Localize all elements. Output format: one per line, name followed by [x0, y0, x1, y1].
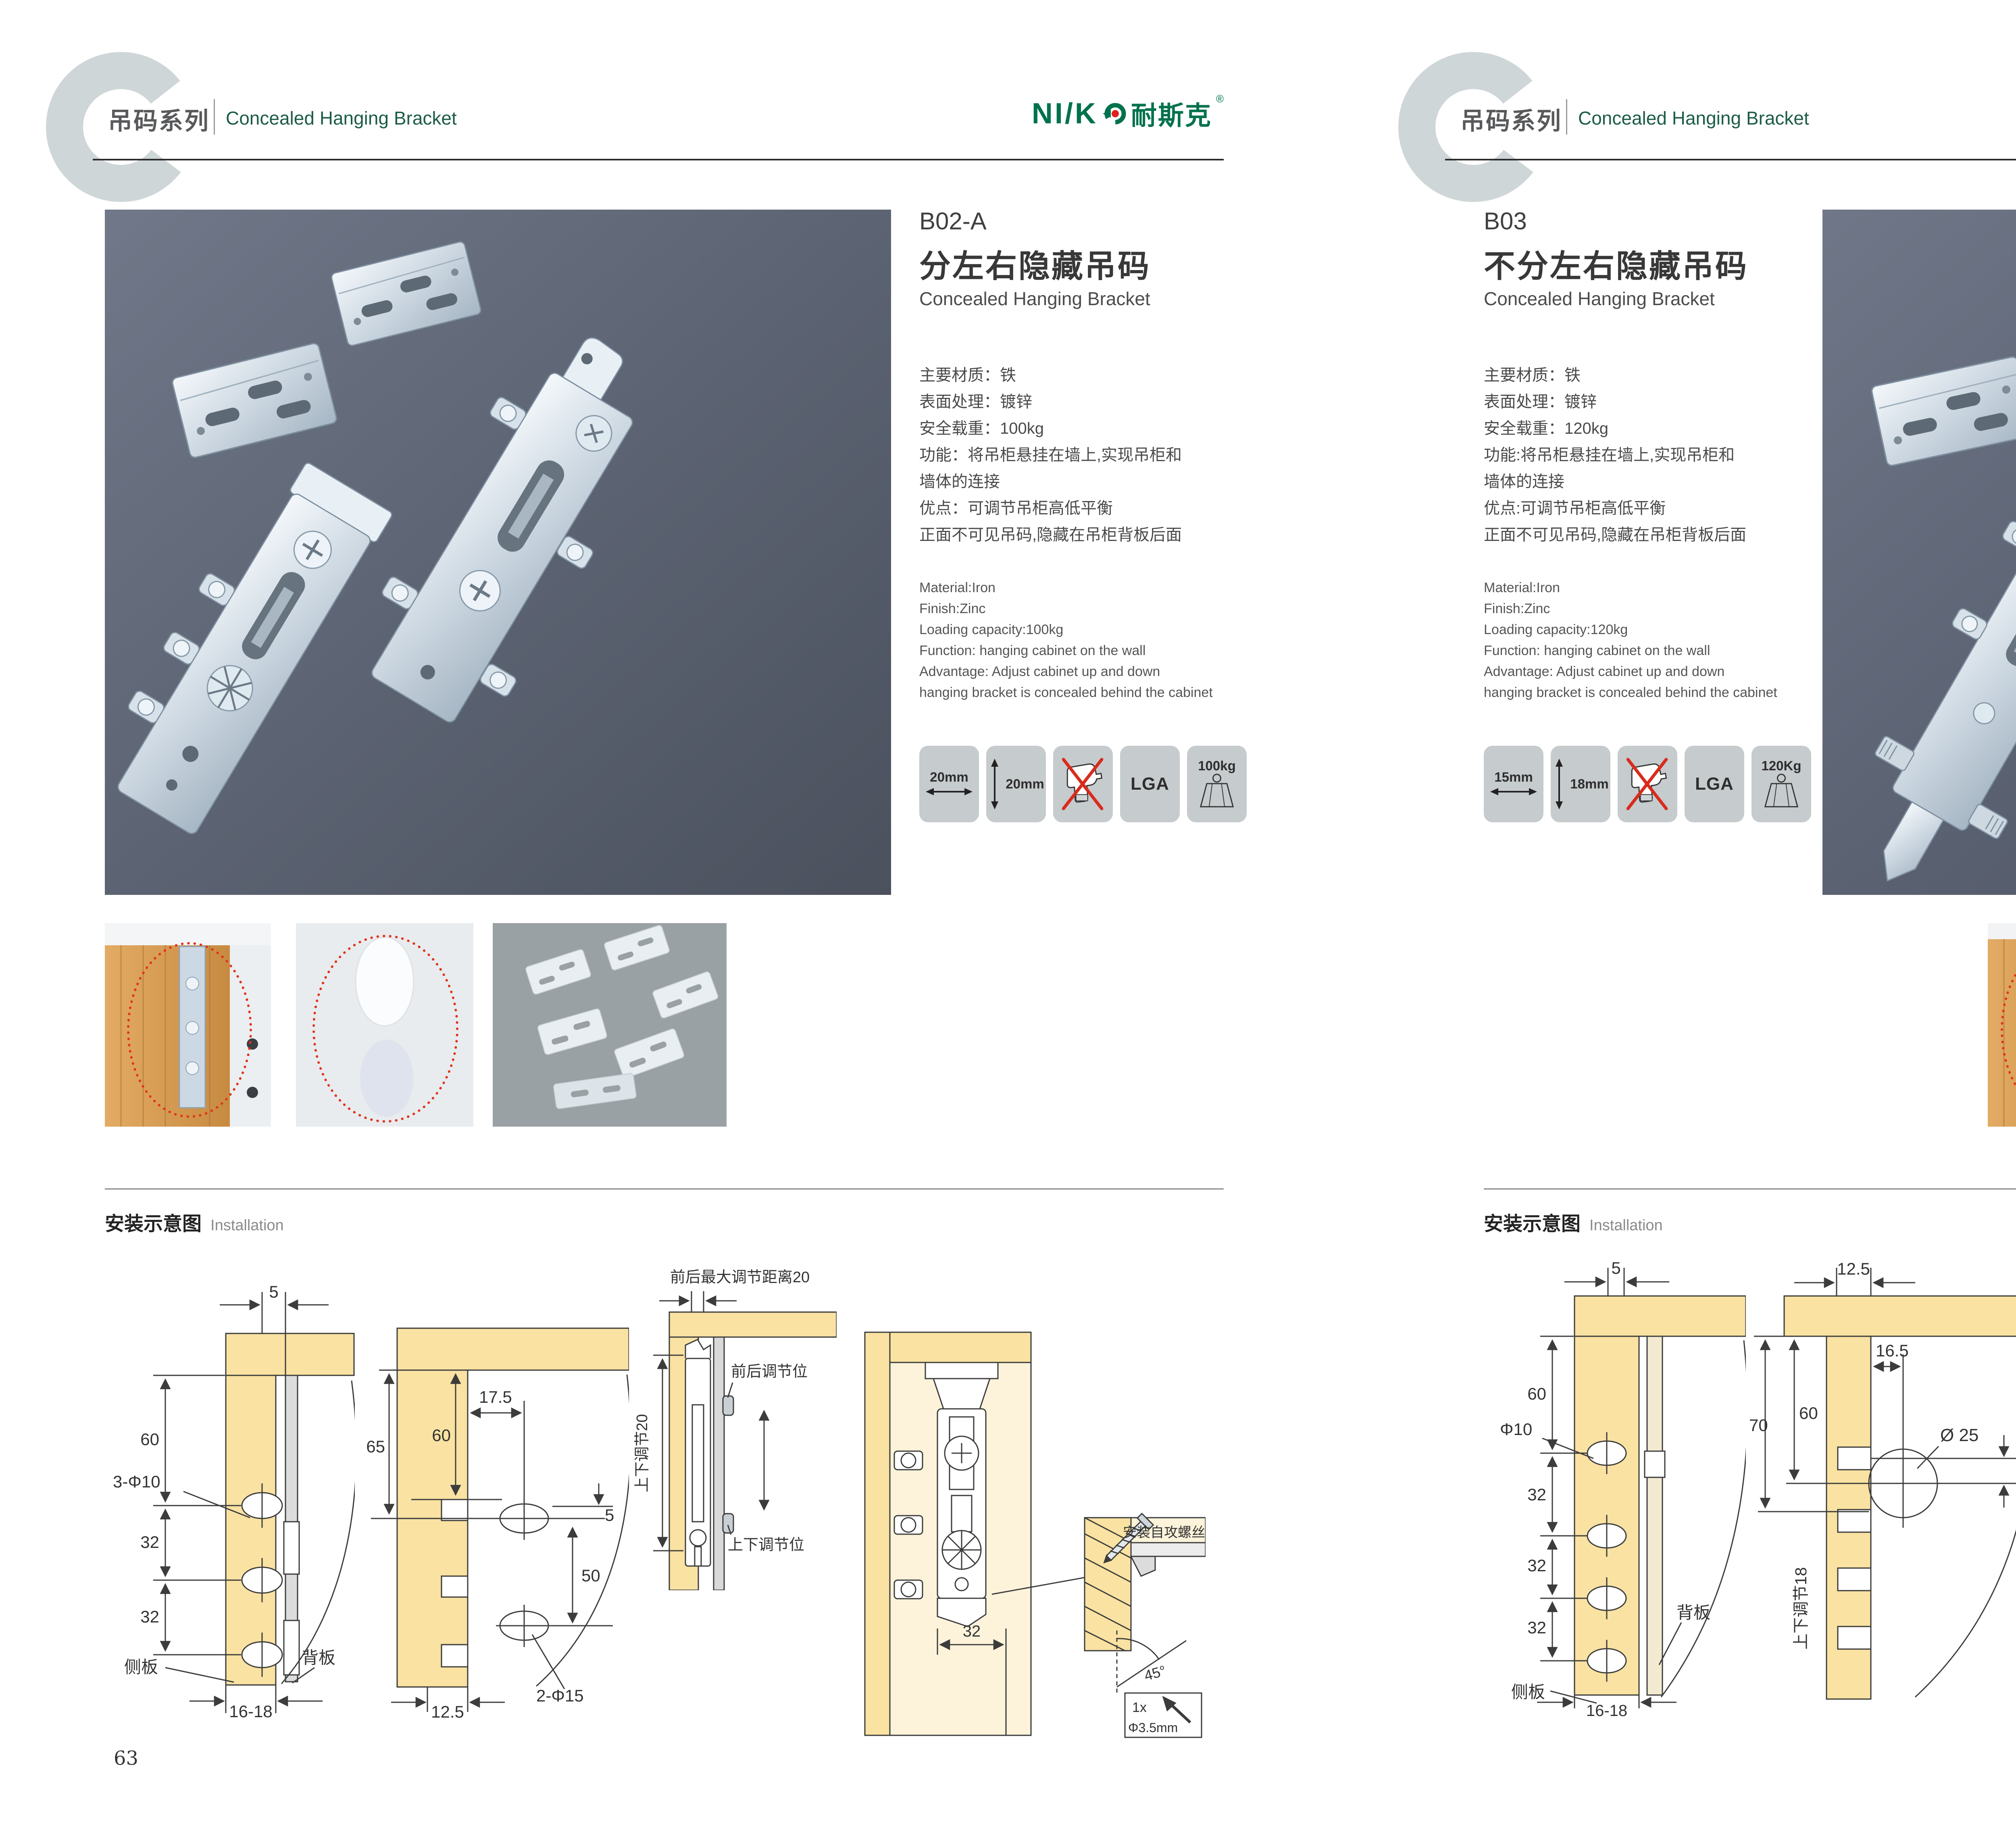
spec-line: 正面不可见吊码,隐藏在吊柜背板后面: [919, 522, 1182, 548]
dim-label: 60: [432, 1426, 451, 1445]
spec-line: Finish:Zinc: [919, 598, 1213, 619]
diagram-front-view-detail: 32 安装自攻螺丝 45° 1x Φ3.5mm: [859, 1276, 1206, 1739]
brand-logo-latin: NI/K: [1032, 97, 1098, 130]
product-specs-cn: 主要材质：铁 表面处理：镀锌 安全载重：120kg 功能:将吊柜悬挂在墙上,实现…: [1484, 362, 1746, 548]
diagram-side-section-1: 5 60 Φ10 32 32 32 背板 侧板 16-18: [1488, 1258, 1746, 1717]
install-title-cn: 安装示意图: [1484, 1213, 1581, 1235]
spec-line: Loading capacity:100kg: [919, 619, 1213, 640]
dim-label: 45°: [1142, 1662, 1168, 1684]
horizontal-arrow-icon: [925, 785, 973, 799]
dim-label: 12.5: [431, 1702, 464, 1719]
spec-line: 主要材质：铁: [1484, 362, 1746, 389]
dim-label: 32: [1527, 1556, 1546, 1575]
dim-label: 5: [605, 1506, 614, 1525]
spec-line: 表面处理：镀锌: [1484, 389, 1746, 415]
series-title-en: Concealed Hanging Bracket: [1578, 107, 1809, 129]
dim-label: 前后最大调节距离20: [670, 1269, 810, 1286]
dim-label: 5: [1611, 1258, 1620, 1277]
dim-label: 17.5: [479, 1387, 512, 1406]
page-63: 吊码系列 Concealed Hanging Bracket NI/K 耐斯克 …: [0, 0, 1352, 1847]
spec-line: Advantage: Adjust cabinet up and down: [919, 661, 1213, 682]
dim-label: 3-Φ10: [113, 1472, 160, 1491]
spec-line: Function: hanging cabinet on the wall: [1484, 640, 1777, 661]
page-64: 吊码系列 Concealed Hanging Bracket NI/K 耐斯克 …: [1352, 0, 2016, 1847]
horizontal-arrow-icon: [1489, 785, 1538, 799]
thumb-wall-plates: [493, 923, 727, 1127]
dim-label: 上下调节位: [728, 1537, 804, 1554]
product-photo-b02a: [105, 210, 891, 895]
badge-width: 15mm: [1484, 746, 1543, 822]
panel-label: 背板: [302, 1648, 335, 1667]
product-name-cn: 分左右隐藏吊码: [919, 241, 1151, 286]
badge-height: 20mm: [986, 746, 1046, 822]
dim-label: 32: [963, 1622, 981, 1640]
catalog-spread: 吊码系列 Concealed Hanging Bracket NI/K 耐斯克 …: [0, 0, 2016, 1847]
spec-line: 表面处理：镀锌: [919, 389, 1182, 415]
dim-label: 16.5: [1876, 1341, 1909, 1360]
spec-line: 主要材质：铁: [919, 362, 1182, 389]
dim-label: 1x: [1132, 1700, 1147, 1715]
vertical-arrow-icon: [1552, 758, 1566, 810]
spec-line: Loading capacity:120kg: [1484, 619, 1777, 640]
spec-line: 优点：可调节吊柜高低平衡: [919, 495, 1182, 522]
spec-line: Material:Iron: [1484, 577, 1777, 598]
product-photo-b03: [1822, 210, 2016, 895]
diagram-side-section-2: 65 60 17.5 5 50 2-Φ15 12.5: [363, 1280, 629, 1719]
spec-line: hanging bracket is concealed behind the …: [1484, 682, 1777, 703]
badge-lga: LGA: [1685, 746, 1744, 822]
thumb-concealed-back: [296, 923, 473, 1127]
spec-line: Finish:Zinc: [1484, 598, 1777, 619]
no-drill-icon: [1622, 754, 1672, 814]
series-divider: [214, 99, 215, 135]
spec-badges: 15mm 18mm: [1484, 746, 1811, 822]
dim-label: 5: [269, 1282, 278, 1301]
header-rule: [93, 159, 1224, 160]
badge-height: 18mm: [1551, 746, 1610, 822]
series-title-cn: 吊码系列: [1460, 102, 1562, 137]
dim-label: 安装自攻螺丝: [1123, 1525, 1205, 1540]
series-divider: [1566, 99, 1567, 135]
brand-logo-o-icon: [1102, 101, 1127, 126]
install-title-cn: 安装示意图: [105, 1213, 202, 1235]
weight-icon: [1757, 774, 1806, 810]
dim-label: 前后调节位: [731, 1363, 808, 1380]
product-code: B03: [1484, 207, 1527, 235]
badge-load: 100kg: [1187, 746, 1247, 822]
dim-label: 32: [1527, 1485, 1546, 1504]
product-specs-en: Material:Iron Finish:Zinc Loading capaci…: [1484, 577, 1777, 703]
dim-label: Ø 25: [1940, 1425, 1979, 1445]
install-rule: [105, 1188, 1224, 1190]
dim-label: 60: [1799, 1404, 1818, 1423]
install-title: 安装示意图Installation: [105, 1208, 284, 1236]
spec-line: 正面不可见吊码,隐藏在吊柜背板后面: [1484, 522, 1746, 548]
vertical-arrow-icon: [988, 758, 1002, 810]
spec-badges: 20mm 20mm: [919, 746, 1247, 822]
dim-label: 12.5: [1837, 1259, 1870, 1278]
install-title: 安装示意图Installation: [1484, 1208, 1663, 1236]
spec-line: 功能:将吊柜悬挂在墙上,实现吊柜和: [1484, 442, 1746, 468]
product-name-cn: 不分左右隐藏吊码: [1484, 241, 1748, 286]
dim-label: 32: [1527, 1618, 1546, 1637]
spec-line: Material:Iron: [919, 577, 1213, 598]
dim-label: 32: [140, 1607, 159, 1626]
badge-load: 120Kg: [1752, 746, 1811, 822]
dim-label: 16-18: [229, 1702, 272, 1719]
brand-logo: NI/K 耐斯克 ®: [1032, 95, 1224, 132]
weight-icon: [1193, 774, 1241, 810]
badge-no-drill: [1053, 746, 1113, 822]
dim-label: 50: [581, 1566, 600, 1585]
spec-line: 功能：将吊柜悬挂在墙上,实现吊柜和: [919, 442, 1182, 468]
spec-line: 安全载重：100kg: [919, 415, 1182, 442]
dim-label: Φ3.5mm: [1128, 1720, 1178, 1735]
badge-no-drill: [1618, 746, 1677, 822]
header-rule: [1445, 159, 2016, 160]
spec-line: Function: hanging cabinet on the wall: [919, 640, 1213, 661]
dim-label: 32: [140, 1533, 159, 1552]
series-title-en: Concealed Hanging Bracket: [226, 107, 457, 129]
series-title-cn: 吊码系列: [108, 102, 210, 137]
dim-label: 2-Φ15: [536, 1686, 584, 1705]
spec-line: 安全载重：120kg: [1484, 415, 1746, 442]
badge-width: 20mm: [919, 746, 979, 822]
brand-logo-cjk: 耐斯克: [1131, 95, 1212, 132]
dim-label: 65: [366, 1437, 385, 1456]
panel-label: 侧板: [124, 1658, 158, 1676]
diagram-adjustment: 前后最大调节距离20 上下调节20 前后调节位 上下调节位: [631, 1256, 837, 1590]
dim-label: 60: [1527, 1384, 1546, 1403]
panel-label: 背板: [1677, 1603, 1710, 1622]
thumb-installed-photo: [105, 923, 271, 1127]
dim-label: 70: [1749, 1416, 1768, 1435]
diagram-side-section-2: 12.5 70 60 16.5 Ø 25 10 上下调节18: [1746, 1258, 2016, 1717]
dim-label: 60: [140, 1430, 159, 1449]
spec-line: 墙体的连接: [1484, 468, 1746, 495]
product-name-en: Concealed Hanging Bracket: [919, 288, 1150, 310]
spec-line: 优点:可调节吊柜高低平衡: [1484, 495, 1746, 522]
product-name-en: Concealed Hanging Bracket: [1484, 288, 1715, 310]
spec-line: 墙体的连接: [919, 468, 1182, 495]
install-rule: [1484, 1188, 2016, 1190]
page-number: 63: [114, 1747, 138, 1770]
dim-label: Φ10: [1500, 1420, 1532, 1439]
diagram-side-section-1: 5 60 3-Φ10 32 32 侧板 背板 16-18: [105, 1280, 355, 1719]
product-code: B02-A: [919, 207, 987, 235]
badge-lga: LGA: [1120, 746, 1180, 822]
install-title-en: Installation: [210, 1217, 284, 1234]
thumb-installed-photo: [1988, 923, 2016, 1127]
product-specs-cn: 主要材质：铁 表面处理：镀锌 安全载重：100kg 功能：将吊柜悬挂在墙上,实现…: [919, 362, 1182, 548]
install-title-en: Installation: [1589, 1217, 1663, 1234]
spec-line: Advantage: Adjust cabinet up and down: [1484, 661, 1777, 682]
no-drill-icon: [1058, 754, 1108, 814]
brand-logo-reg: ®: [1216, 93, 1224, 105]
dim-label: 上下调节20: [634, 1414, 651, 1492]
spec-line: hanging bracket is concealed behind the …: [919, 682, 1213, 703]
panel-label: 侧板: [1511, 1683, 1545, 1701]
dim-label: 16-18: [1586, 1702, 1627, 1717]
product-specs-en: Material:Iron Finish:Zinc Loading capaci…: [919, 577, 1213, 703]
dim-label: 上下调节18: [1792, 1567, 1810, 1650]
